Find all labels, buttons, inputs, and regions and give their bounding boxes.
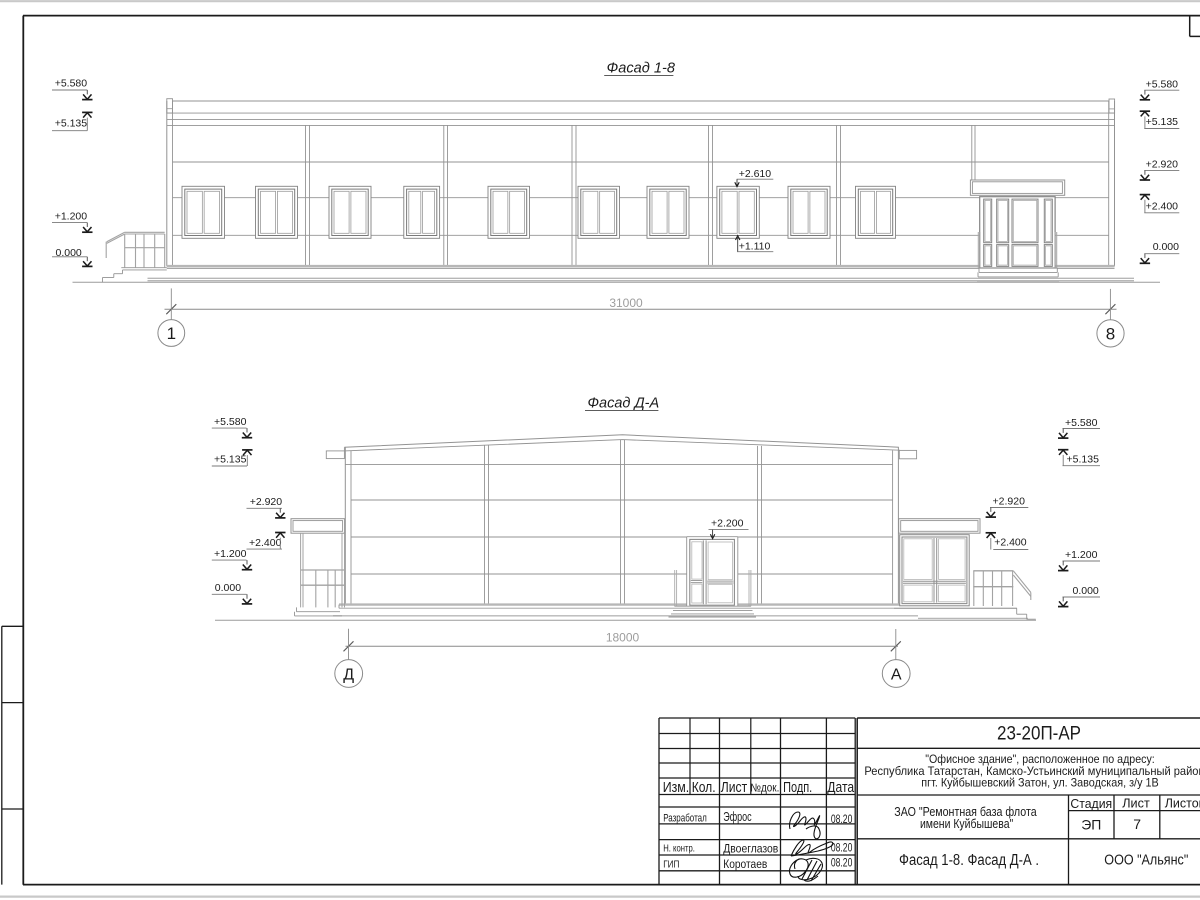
svg-text:+1.200: +1.200 [1065,549,1098,561]
svg-text:0.000: 0.000 [1073,585,1099,597]
svg-text:ООО "Альянс": ООО "Альянс" [1104,852,1188,868]
svg-text:+5.580: +5.580 [1146,78,1179,90]
svg-text:Лист: Лист [1122,797,1150,811]
svg-text:+5.135: +5.135 [1146,116,1179,128]
svg-text:Подп.: Подп. [783,779,812,796]
svg-text:+2.400: +2.400 [994,537,1027,549]
svg-text:Фасад 1-8. Фасад Д-А .: Фасад 1-8. Фасад Д-А . [899,852,1039,869]
svg-text:ЭП: ЭП [1081,817,1101,833]
svg-text:8: 8 [1106,325,1115,344]
svg-text:+5.135: +5.135 [1067,453,1100,465]
svg-text:Эфрос: Эфрос [723,810,751,824]
svg-text:08.20: 08.20 [831,812,853,826]
svg-text:Изм.: Изм. [663,779,690,796]
svg-text:Коротаев: Коротаев [723,857,767,871]
svg-text:Фасад Д-А: Фасад Д-А [588,396,660,412]
svg-text:ГИП: ГИП [663,858,679,870]
svg-text:Разработал: Разработал [663,812,707,824]
svg-text:+5.580: +5.580 [55,78,88,90]
svg-text:1: 1 [167,324,176,343]
svg-text:+5.135: +5.135 [55,117,88,129]
svg-text:+1.110: +1.110 [739,240,771,252]
svg-text:Стадия: Стадия [1070,797,1112,811]
svg-text:31000: 31000 [609,296,643,310]
svg-text:+5.580: +5.580 [1065,417,1098,429]
svg-text:+2.200: +2.200 [711,517,744,529]
svg-text:Фасад 1-8: Фасад 1-8 [607,61,675,77]
svg-text:Двоеглазов: Двоеглазов [723,841,778,855]
svg-text:Дата: Дата [827,779,854,796]
svg-text:+2.400: +2.400 [249,537,282,549]
svg-text:7: 7 [1133,816,1141,832]
svg-text:08.20: 08.20 [831,855,853,869]
svg-text:23-20П-АР: 23-20П-АР [997,723,1081,745]
svg-text:Н. контр.: Н. контр. [663,842,695,854]
svg-text:0.000: 0.000 [1153,241,1179,253]
svg-text:18000: 18000 [606,630,640,644]
svg-text:А: А [891,666,902,683]
svg-text:0.000: 0.000 [215,582,241,594]
svg-text:+5.135: +5.135 [214,453,247,465]
svg-text:+1.200: +1.200 [214,548,247,560]
svg-text:Листов: Листов [1165,797,1200,811]
svg-text:08.20: 08.20 [831,840,853,854]
svg-text:+2.400: +2.400 [1146,201,1179,213]
svg-text:Кол.: Кол. [692,779,716,796]
svg-text:+1.200: +1.200 [55,210,88,222]
svg-text:Д: Д [343,666,354,683]
svg-text:+2.920: +2.920 [250,496,283,508]
svg-text:+2.920: +2.920 [993,496,1026,508]
svg-text:Лист: Лист [721,779,748,796]
svg-text:имени Куйбышева": имени Куйбышева" [920,817,1013,831]
svg-text:+2.610: +2.610 [739,168,772,180]
svg-text:+5.580: +5.580 [214,416,247,428]
svg-text:пгт. Куйбышевский Затон, ул. З: пгт. Куйбышевский Затон, ул. Заводская, … [921,776,1159,789]
svg-text:+2.920: +2.920 [1146,159,1179,171]
svg-text:№док.: №док. [750,783,779,795]
